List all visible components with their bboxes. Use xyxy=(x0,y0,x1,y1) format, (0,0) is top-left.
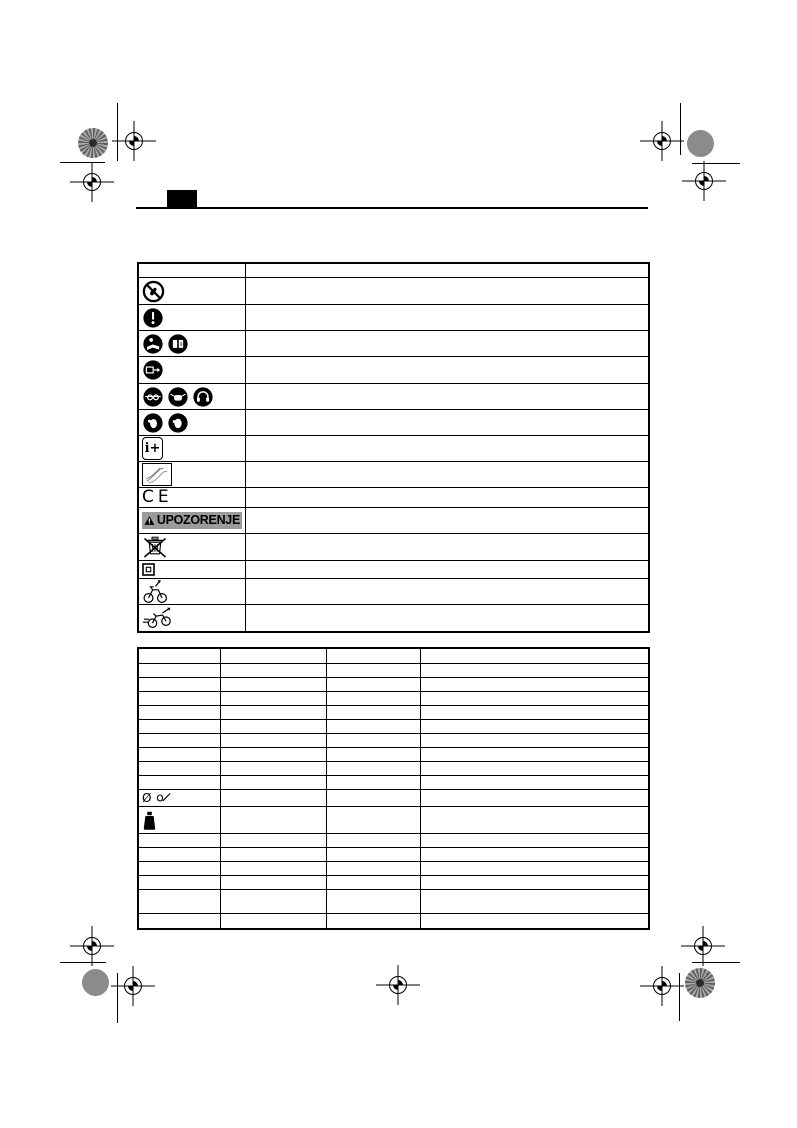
table-cell: UPOZORENJE xyxy=(139,508,246,533)
table-cell xyxy=(421,876,648,889)
symbols-legend-table: i+ CE xyxy=(137,262,650,633)
table-cell xyxy=(327,890,421,913)
table-cell xyxy=(246,561,648,578)
table-cell xyxy=(246,436,648,461)
table-cell xyxy=(246,508,648,533)
table-cell xyxy=(139,834,221,847)
table-row xyxy=(139,747,648,761)
table-cell xyxy=(221,776,327,789)
table-cell xyxy=(139,762,221,775)
table-cell xyxy=(221,790,327,806)
warning-banner: UPOZORENJE xyxy=(142,512,242,529)
do-not-touch-prohibition-icon xyxy=(142,280,165,303)
mandatory-attention-icon xyxy=(142,307,164,329)
table-cell xyxy=(421,678,648,691)
table-row xyxy=(139,806,648,833)
table-cell xyxy=(421,848,648,861)
table-cell xyxy=(421,776,648,789)
table-cell xyxy=(421,790,648,806)
registration-crosshair-icon xyxy=(70,162,114,202)
table-cell xyxy=(139,462,246,487)
table-row xyxy=(139,277,648,304)
table-row xyxy=(139,691,648,705)
table-cell xyxy=(221,692,327,705)
table-cell xyxy=(221,848,327,861)
table-cell xyxy=(246,331,648,356)
table-cell xyxy=(246,534,648,560)
table-row xyxy=(139,461,648,487)
table-row xyxy=(139,663,648,677)
table-cell xyxy=(139,720,221,733)
additional-information-label: i+ xyxy=(145,441,161,456)
weee-crossed-bin-icon xyxy=(142,534,168,560)
technical-data-table: Ø xyxy=(137,647,650,930)
table-cell xyxy=(421,748,648,761)
wear-dust-mask-icon xyxy=(167,386,189,408)
black-index-tab xyxy=(167,190,197,207)
table-row xyxy=(139,649,648,663)
table-cell xyxy=(139,678,221,691)
table-cell xyxy=(139,605,246,631)
hand-sketch-icon xyxy=(142,463,172,486)
table-cell xyxy=(421,890,648,913)
open-manual-book-icon xyxy=(167,333,189,355)
table-row xyxy=(139,875,648,889)
table-row xyxy=(139,330,648,356)
blade-diameter-icon xyxy=(155,791,172,805)
table-cell xyxy=(246,305,648,330)
table-cell xyxy=(139,776,221,789)
diameter-symbol: Ø xyxy=(142,792,151,804)
table-cell xyxy=(221,734,327,747)
table-cell xyxy=(221,834,327,847)
registration-crosshair-icon xyxy=(640,121,684,161)
document-page: i+ CE xyxy=(0,0,797,1128)
table-cell xyxy=(327,678,421,691)
read-user-manual-icon xyxy=(142,333,164,355)
table-cell: CE xyxy=(139,488,246,507)
table-cell xyxy=(327,862,421,875)
table-cell xyxy=(421,914,648,928)
table-cell xyxy=(139,649,221,663)
crop-line-horizontal xyxy=(692,962,740,963)
wear-glove-icon xyxy=(142,412,164,434)
table-cell xyxy=(139,534,246,560)
ce-mark: CE xyxy=(142,489,173,506)
table-cell xyxy=(327,834,421,847)
table-cell xyxy=(139,278,246,304)
table-cell xyxy=(246,488,648,507)
table-cell xyxy=(327,734,421,747)
table-cell xyxy=(327,664,421,677)
gray-dot xyxy=(687,130,714,157)
table-row xyxy=(139,604,648,631)
additional-information-icon: i+ xyxy=(142,437,163,460)
table-cell xyxy=(246,605,648,631)
table-row: CE xyxy=(139,487,648,507)
table-row xyxy=(139,889,648,913)
registration-crosshair-icon xyxy=(70,926,114,966)
table-cell xyxy=(327,748,421,761)
table-cell: Ø xyxy=(139,790,221,806)
wear-eye-protection-icon xyxy=(142,386,164,408)
registration-crosshair-icon xyxy=(640,966,684,1006)
table-cell xyxy=(221,862,327,875)
wear-ear-protection-icon xyxy=(192,386,214,408)
table-cell xyxy=(246,357,648,383)
color-segment-wheel xyxy=(78,128,108,158)
table-cell xyxy=(421,664,648,677)
table-cell xyxy=(327,807,421,833)
table-cell xyxy=(221,890,327,913)
table-cell xyxy=(139,357,246,383)
table-cell xyxy=(139,848,221,861)
table-row xyxy=(139,705,648,719)
table-cell xyxy=(327,762,421,775)
table-cell xyxy=(221,748,327,761)
table-cell xyxy=(246,278,648,304)
table-cell xyxy=(221,720,327,733)
table-row xyxy=(139,533,648,560)
table-row xyxy=(139,775,648,789)
table-row xyxy=(139,383,648,409)
table-cell xyxy=(139,692,221,705)
table-cell xyxy=(327,692,421,705)
table-cell xyxy=(327,790,421,806)
registration-crosshair-icon xyxy=(681,926,725,966)
table-cell xyxy=(139,914,221,928)
table-cell xyxy=(327,876,421,889)
table-row xyxy=(139,861,648,875)
color-segment-wheel xyxy=(685,968,715,998)
table-cell xyxy=(139,734,221,747)
table-cell: i+ xyxy=(139,436,246,461)
table-cell xyxy=(421,862,648,875)
table-cell xyxy=(327,649,421,663)
table-cell xyxy=(139,890,221,913)
table-cell xyxy=(139,410,246,435)
table-row xyxy=(139,913,648,928)
table-cell xyxy=(327,914,421,928)
table-cell xyxy=(327,720,421,733)
table-row xyxy=(139,409,648,435)
table-cell xyxy=(139,664,221,677)
registration-crosshair-icon xyxy=(111,966,155,1006)
table-cell xyxy=(327,706,421,719)
table-cell xyxy=(221,649,327,663)
table-row: i+ xyxy=(139,435,648,461)
table-cell xyxy=(221,876,327,889)
table-row xyxy=(139,578,648,604)
table-cell xyxy=(421,807,648,833)
wear-glove-icon xyxy=(167,412,189,434)
table-cell xyxy=(221,664,327,677)
table-cell xyxy=(139,384,246,409)
table-cell xyxy=(421,762,648,775)
registration-crosshair-icon xyxy=(376,965,420,1005)
table-cell xyxy=(246,264,648,277)
table-row xyxy=(139,677,648,691)
table-cell xyxy=(327,776,421,789)
table-cell xyxy=(139,876,221,889)
table-cell xyxy=(246,579,648,604)
registration-crosshair-icon xyxy=(112,121,156,161)
table-cell xyxy=(139,561,246,578)
table-cell xyxy=(246,462,648,487)
protection-class-ii-icon xyxy=(142,563,155,576)
table-cell xyxy=(421,706,648,719)
table-row xyxy=(139,833,648,847)
warning-banner-label: UPOZORENJE xyxy=(157,514,240,527)
table-cell xyxy=(139,264,246,277)
table-row xyxy=(139,761,648,775)
table-cell xyxy=(221,807,327,833)
table-cell xyxy=(221,706,327,719)
header-rule xyxy=(136,207,648,209)
table-row xyxy=(139,847,648,861)
warning-triangle-icon xyxy=(144,515,155,526)
table-cell xyxy=(421,834,648,847)
table-row xyxy=(139,719,648,733)
table-cell xyxy=(327,848,421,861)
table-cell xyxy=(139,331,246,356)
table-cell xyxy=(221,914,327,928)
table-row xyxy=(139,304,648,330)
table-cell xyxy=(139,862,221,875)
table-row xyxy=(139,560,648,578)
table-cell xyxy=(421,734,648,747)
speeding-bicycle-icon xyxy=(142,607,173,629)
weight-icon xyxy=(142,811,157,830)
table-cell xyxy=(139,706,221,719)
table-cell xyxy=(246,384,648,409)
table-cell xyxy=(139,748,221,761)
registration-crosshair-icon xyxy=(682,161,726,201)
table-row: UPOZORENJE xyxy=(139,507,648,533)
remove-battery-icon xyxy=(142,359,164,381)
table-cell xyxy=(421,720,648,733)
table-row xyxy=(139,264,648,277)
table-cell xyxy=(421,692,648,705)
table-cell xyxy=(139,579,246,604)
table-cell xyxy=(139,305,246,330)
table-row xyxy=(139,356,648,383)
table-cell xyxy=(421,649,648,663)
table-cell xyxy=(221,762,327,775)
gray-dot xyxy=(82,969,109,996)
table-cell xyxy=(221,678,327,691)
table-cell xyxy=(139,807,221,833)
table-row: Ø xyxy=(139,789,648,806)
bicycle-arrow-icon xyxy=(142,579,169,604)
table-cell xyxy=(246,410,648,435)
crop-line-horizontal xyxy=(60,962,106,963)
table-row xyxy=(139,733,648,747)
